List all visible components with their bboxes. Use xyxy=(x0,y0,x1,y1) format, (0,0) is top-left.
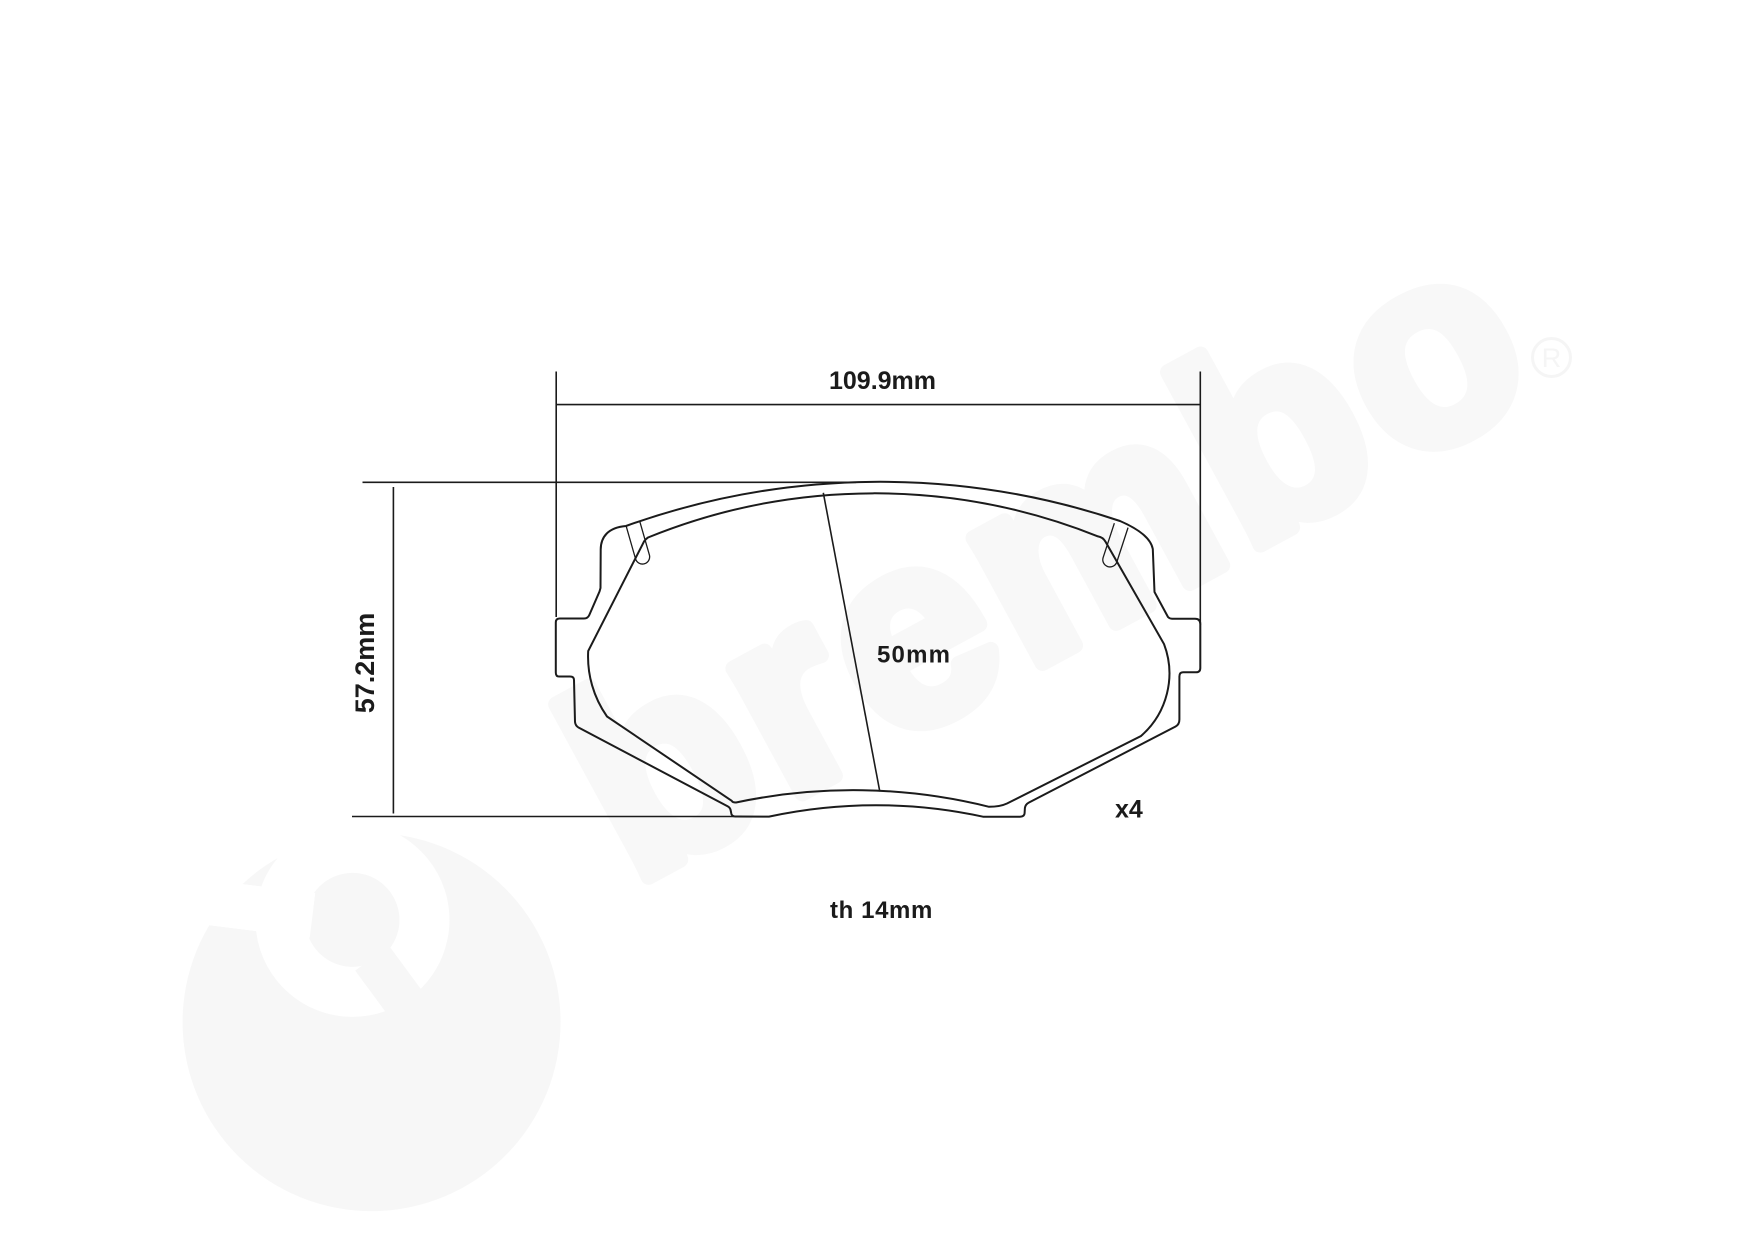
svg-text:brembo: brembo xyxy=(517,174,1578,937)
svg-text:x4: x4 xyxy=(1115,796,1143,824)
svg-text:109.9mm: 109.9mm xyxy=(829,367,936,395)
svg-text:R: R xyxy=(1542,343,1562,373)
svg-text:57.2mm: 57.2mm xyxy=(350,613,380,714)
svg-text:50mm: 50mm xyxy=(877,642,951,669)
svg-text:th 14mm: th 14mm xyxy=(830,897,933,924)
